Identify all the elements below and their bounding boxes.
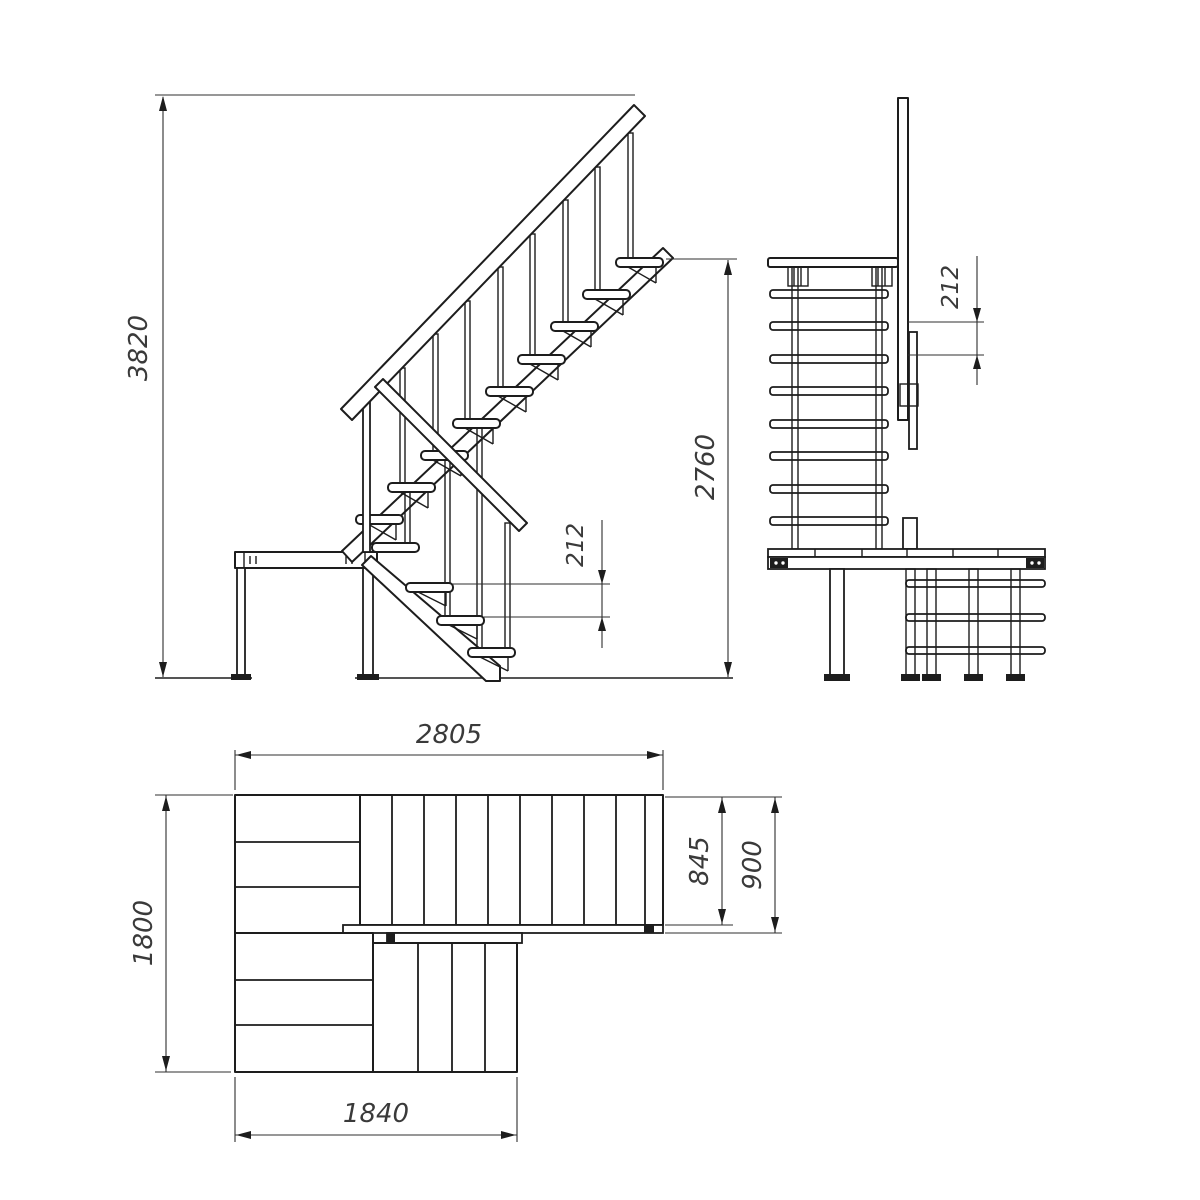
dimension-label-step-rise: 212 — [563, 523, 589, 567]
arrow-down-icon — [718, 909, 726, 924]
dimension-label-landing-depth: 1800 — [129, 900, 159, 966]
newel-post — [363, 395, 370, 552]
platform-leg-foot — [231, 674, 251, 680]
extension-line — [908, 322, 984, 355]
tread-edge — [770, 485, 888, 493]
arrow-down-icon — [162, 1056, 170, 1071]
tread — [372, 543, 419, 552]
tread — [551, 322, 598, 331]
tread-edge — [770, 290, 888, 298]
dimension-lower-flight-length: 1840 — [235, 1077, 517, 1142]
baluster — [595, 167, 600, 290]
dimension-label-upper-flight-length: 2805 — [416, 720, 482, 750]
tread-edge — [770, 355, 888, 363]
bolt — [781, 561, 784, 564]
dimension-upper-flight-length: 2805 — [235, 720, 663, 790]
dimension-label-step-rise: 212 — [938, 265, 964, 309]
upper-flight-plan — [360, 795, 663, 925]
support-post — [477, 427, 482, 648]
tread — [616, 258, 663, 267]
lower-flight-treads — [372, 543, 515, 671]
leg-foot — [1006, 674, 1025, 681]
frame-end-block — [1026, 558, 1044, 568]
bolt — [1037, 561, 1040, 564]
arrow-down-icon — [724, 662, 732, 677]
leg-foot — [922, 674, 941, 681]
tread — [437, 616, 484, 625]
tread — [518, 355, 565, 364]
plan-view: 2805 845 900 1800 — [129, 720, 782, 1142]
side-lower-flight — [901, 569, 1045, 681]
arrow-down-icon — [598, 570, 606, 584]
rail-connector — [903, 518, 917, 549]
frame-end-block — [770, 558, 788, 568]
arrow-up-icon — [771, 798, 779, 813]
platform-frame — [768, 557, 1045, 569]
landing-platform — [231, 552, 379, 680]
arrow-up-icon — [973, 355, 981, 369]
support-post — [505, 523, 510, 648]
bolt — [774, 561, 777, 564]
baluster — [792, 267, 798, 549]
dimension-label-total-height: 3820 — [124, 315, 154, 381]
dimension-label-flight-width: 900 — [738, 840, 768, 890]
tread — [406, 583, 453, 592]
arrow-right-icon — [501, 1131, 516, 1139]
extension-line — [155, 795, 233, 1072]
arrow-left-icon — [236, 751, 251, 759]
tread-edge — [770, 387, 888, 395]
arrow-up-icon — [159, 96, 167, 111]
baluster — [400, 368, 405, 483]
front-elevation-view: 3820 2760 212 — [124, 95, 737, 681]
baluster — [465, 301, 470, 419]
baluster — [498, 267, 503, 387]
tread — [453, 419, 500, 428]
tread — [583, 290, 630, 299]
bolt — [1030, 561, 1033, 564]
side-elevation-view: 212 — [768, 98, 1045, 681]
dimension-label-upper-flight-height: 2760 — [691, 434, 721, 500]
dimension-landing-depth: 1800 — [129, 795, 233, 1072]
top-floor-board — [768, 258, 898, 267]
arrow-up-icon — [718, 798, 726, 813]
baluster — [876, 267, 882, 549]
tread-edge — [770, 517, 888, 525]
tread — [388, 483, 435, 492]
arrow-up-icon — [598, 617, 606, 631]
arrow-right-icon — [647, 751, 662, 759]
dimension-step-rise-side: 212 — [908, 256, 984, 385]
platform-leg — [363, 568, 373, 675]
stringer-notch — [644, 925, 654, 933]
extension-line — [452, 584, 610, 617]
dimension-label-lower-flight-length: 1840 — [343, 1099, 409, 1129]
baluster — [530, 234, 535, 355]
tread — [468, 648, 515, 657]
tread-edge — [770, 452, 888, 460]
arrow-down-icon — [159, 662, 167, 677]
arrow-up-icon — [724, 260, 732, 275]
platform-leg — [237, 568, 245, 675]
leg-foot — [964, 674, 983, 681]
tread — [486, 387, 533, 396]
arrow-down-icon — [973, 308, 981, 322]
arrow-up-icon — [162, 796, 170, 811]
baluster — [563, 200, 568, 322]
lower-flight-plan — [373, 943, 517, 1072]
drawing-canvas: 3820 2760 212 — [0, 0, 1200, 1200]
staircase-technical-drawing: 3820 2760 212 — [0, 0, 1200, 1200]
stacked-treads — [770, 290, 888, 525]
handrail-post — [898, 98, 908, 420]
baluster — [628, 133, 633, 258]
dimension-step-rise-front: 212 — [452, 520, 610, 648]
arrow-down-icon — [771, 917, 779, 932]
extension-line — [235, 750, 663, 790]
lower-stringer-plan — [387, 933, 522, 943]
tread-edge — [770, 420, 888, 428]
stringer-end-cap — [387, 933, 395, 943]
upper-stringer-plan — [343, 925, 663, 933]
arrow-left-icon — [236, 1131, 251, 1139]
landing-deck-upper — [235, 795, 360, 933]
platform-leg — [830, 569, 844, 675]
tread-edge — [770, 322, 888, 330]
handrail-offset-section — [909, 332, 917, 449]
landing-deck-lower — [235, 933, 373, 1072]
dimension-upper-flight-height: 2760 — [666, 259, 737, 677]
dimension-label-tread-width: 845 — [685, 836, 715, 886]
platform-leg-foot — [824, 674, 850, 681]
platform-leg-foot — [357, 674, 379, 680]
leg-foot — [901, 674, 920, 681]
